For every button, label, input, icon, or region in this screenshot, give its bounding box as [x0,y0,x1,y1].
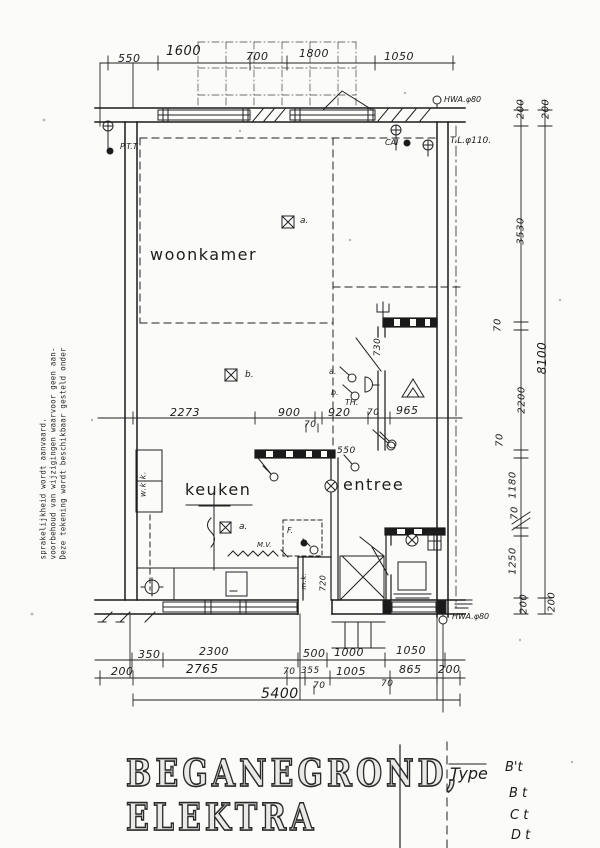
ceiling-point-a-living [282,216,294,228]
disclaimer-line-3: sprakelijkheid wordt aanvaard. [39,265,49,560]
toilet [398,562,426,590]
hwa-pipe-top [433,96,441,108]
radiator [228,550,288,557]
scan-noise [31,92,574,763]
dim-right-1250: 1250 [508,547,519,574]
floorplan-drawing [0,0,600,848]
dim-mk-720: 720 [319,575,328,592]
switch-a-label: a. [329,367,336,376]
dim-right-70c: 70 [510,506,521,520]
type-row-1: B't [505,760,523,775]
dim-top-1800: 1800 [299,47,329,60]
dim-bot2-865: 865 [399,663,422,676]
dim-right-2200: 2200 [517,386,528,413]
dim-bot2-355: 355 [301,666,320,676]
room-label-woonkamer: woonkamer [150,245,257,264]
drawing-title-line1: BEGANEGROND, [126,752,461,796]
dim-outer-8100: 8100 [535,342,549,375]
kitchen-sink [226,572,247,596]
wall-socket-1 [380,432,396,448]
dim-right-200-bot: 200 [519,594,530,615]
cai-label: CAI [385,138,398,147]
room-label-entree: entree [343,475,404,494]
disclaimer-line-2: voorbehoud van wijzigingen waarvoor geen… [49,265,59,560]
wall-socket-2 [344,455,359,471]
kitchen-counter [138,568,298,600]
exterior-stoop [332,622,385,648]
floorplan-page: sprakelijkheid wordt aanvaard. voorbehou… [0,0,600,848]
disclaimer-line-1: Deze tekening wordt beschikbaar gesteld … [59,265,69,560]
dim-right-1180: 1180 [508,471,519,498]
dim-mid-920: 920 [328,406,351,419]
mv-label: M.V. [257,541,271,549]
thermostat-label: TH. [345,398,358,407]
switch-a [340,367,356,382]
dim-bot1-1000: 1000 [334,646,364,659]
kitchen-pendant [199,492,230,570]
ceiling-point-b-living [225,369,237,381]
dim-outer-200-bot: 200 [547,592,558,613]
dim-bot-total-5400: 5400 [261,686,299,702]
dim-right-3530: 3530 [516,217,527,244]
dim-mid-2273: 2273 [170,406,200,419]
dim-mid-965: 965 [396,404,419,417]
dim-top-1600: 1600 [166,44,201,59]
fridge-label: F. [287,526,293,535]
wc-lamp [406,534,418,546]
hwa-top-label: HWA.φ80 [444,95,481,104]
type-table-heading: Type [450,764,488,783]
ptt-label: P.T.T. [120,142,139,151]
kitchen-light-a-label: a. [239,522,247,532]
room-label-keuken: keuken [185,480,251,499]
disclaimer-text: sprakelijkheid wordt aanvaard. voorbehou… [39,265,69,560]
ptt-outlet [103,121,113,154]
roof-peak-mark [323,91,371,110]
type-row-4: D t [511,828,530,843]
drawing-title-line2: ELEKTRA [126,796,317,840]
switch-b-label: b. [331,388,339,397]
dim-outer-200-top: 200 [541,99,552,120]
light-point-a-label: a. [300,216,308,226]
hwa-bottom-label: HWA.φ80 [452,612,489,621]
projection-grid [198,42,356,108]
dim-hall-730: 730 [373,338,383,357]
wall-socket-3 [263,466,278,481]
dim-top-700: 700 [246,50,269,63]
type-row-3: C t [510,808,528,823]
type-row-2: B t [509,786,527,801]
dim-mid-900: 900 [278,406,301,419]
dim-bot1-1050: 1050 [396,644,426,657]
wkk-label: w.k.k. [139,471,148,497]
ceiling-point-a-kitchen [220,522,231,533]
thermostat-symbol [365,377,379,392]
dim-right-200-top: 200 [516,99,527,120]
dim-bot2-70: 70 [283,667,295,677]
tl-pipe-label: T.L.φ110. [450,136,491,146]
dim-top-1050: 1050 [384,50,414,63]
dim-bot1-2300: 2300 [199,645,229,658]
dim-bot1-350: 350 [138,648,161,661]
light-point-b-label: b. [245,370,254,380]
dim-bot2-70b2: 70 [381,679,393,689]
mk-label: m.k. [300,572,308,589]
dim-bot2-200a: 200 [111,665,134,678]
dim-hall-550: 550 [337,446,356,456]
dim-bot2-1005: 1005 [336,665,366,678]
dim-bot2-200b: 200 [438,663,461,676]
dim-bot2-2765: 2765 [186,662,219,676]
hall-lamp [325,480,337,492]
dim-mid-70-below: 70 [304,420,316,430]
electrical-symbols [103,96,472,624]
dim-right-70a: 70 [493,318,504,332]
vent-triangle [402,379,424,397]
interior-walls [255,318,445,600]
dim-bot2-70b1: 70 [313,681,325,691]
dim-right-70b: 70 [495,433,506,447]
dim-mid-70: 70 [367,408,379,418]
dim-bot1-500: 500 [303,647,326,660]
dim-top-550: 550 [118,52,141,65]
